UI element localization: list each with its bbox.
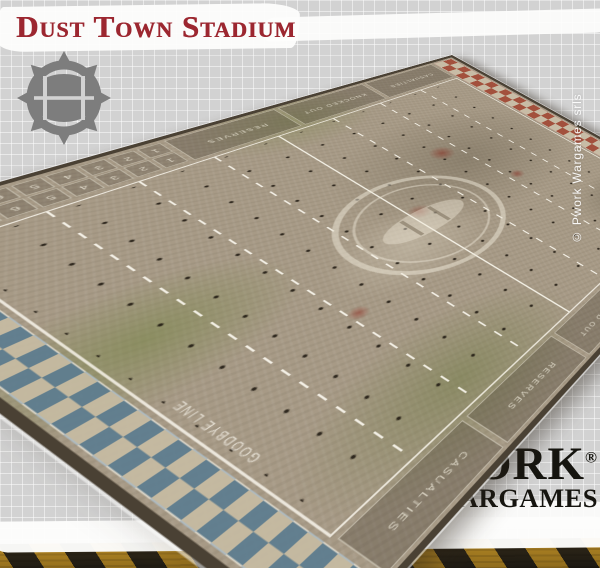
fantasy-football-emblem-icon	[14, 48, 114, 148]
page-title: Dust Town Stadium	[16, 8, 296, 45]
dugout-box-label: CASUALTIES	[387, 73, 433, 88]
copyright-text: © Pwork Wargames srls	[570, 34, 584, 244]
registered-mark: ®	[585, 449, 598, 466]
brush-stroke-top-right	[262, 8, 600, 42]
football-icon	[371, 194, 473, 252]
product-image-canvas: PWORK® WARGAMES CASUALTIES KNOCKED OUT R…	[0, 0, 600, 568]
dugout-box-label: RESERVES	[504, 360, 556, 411]
